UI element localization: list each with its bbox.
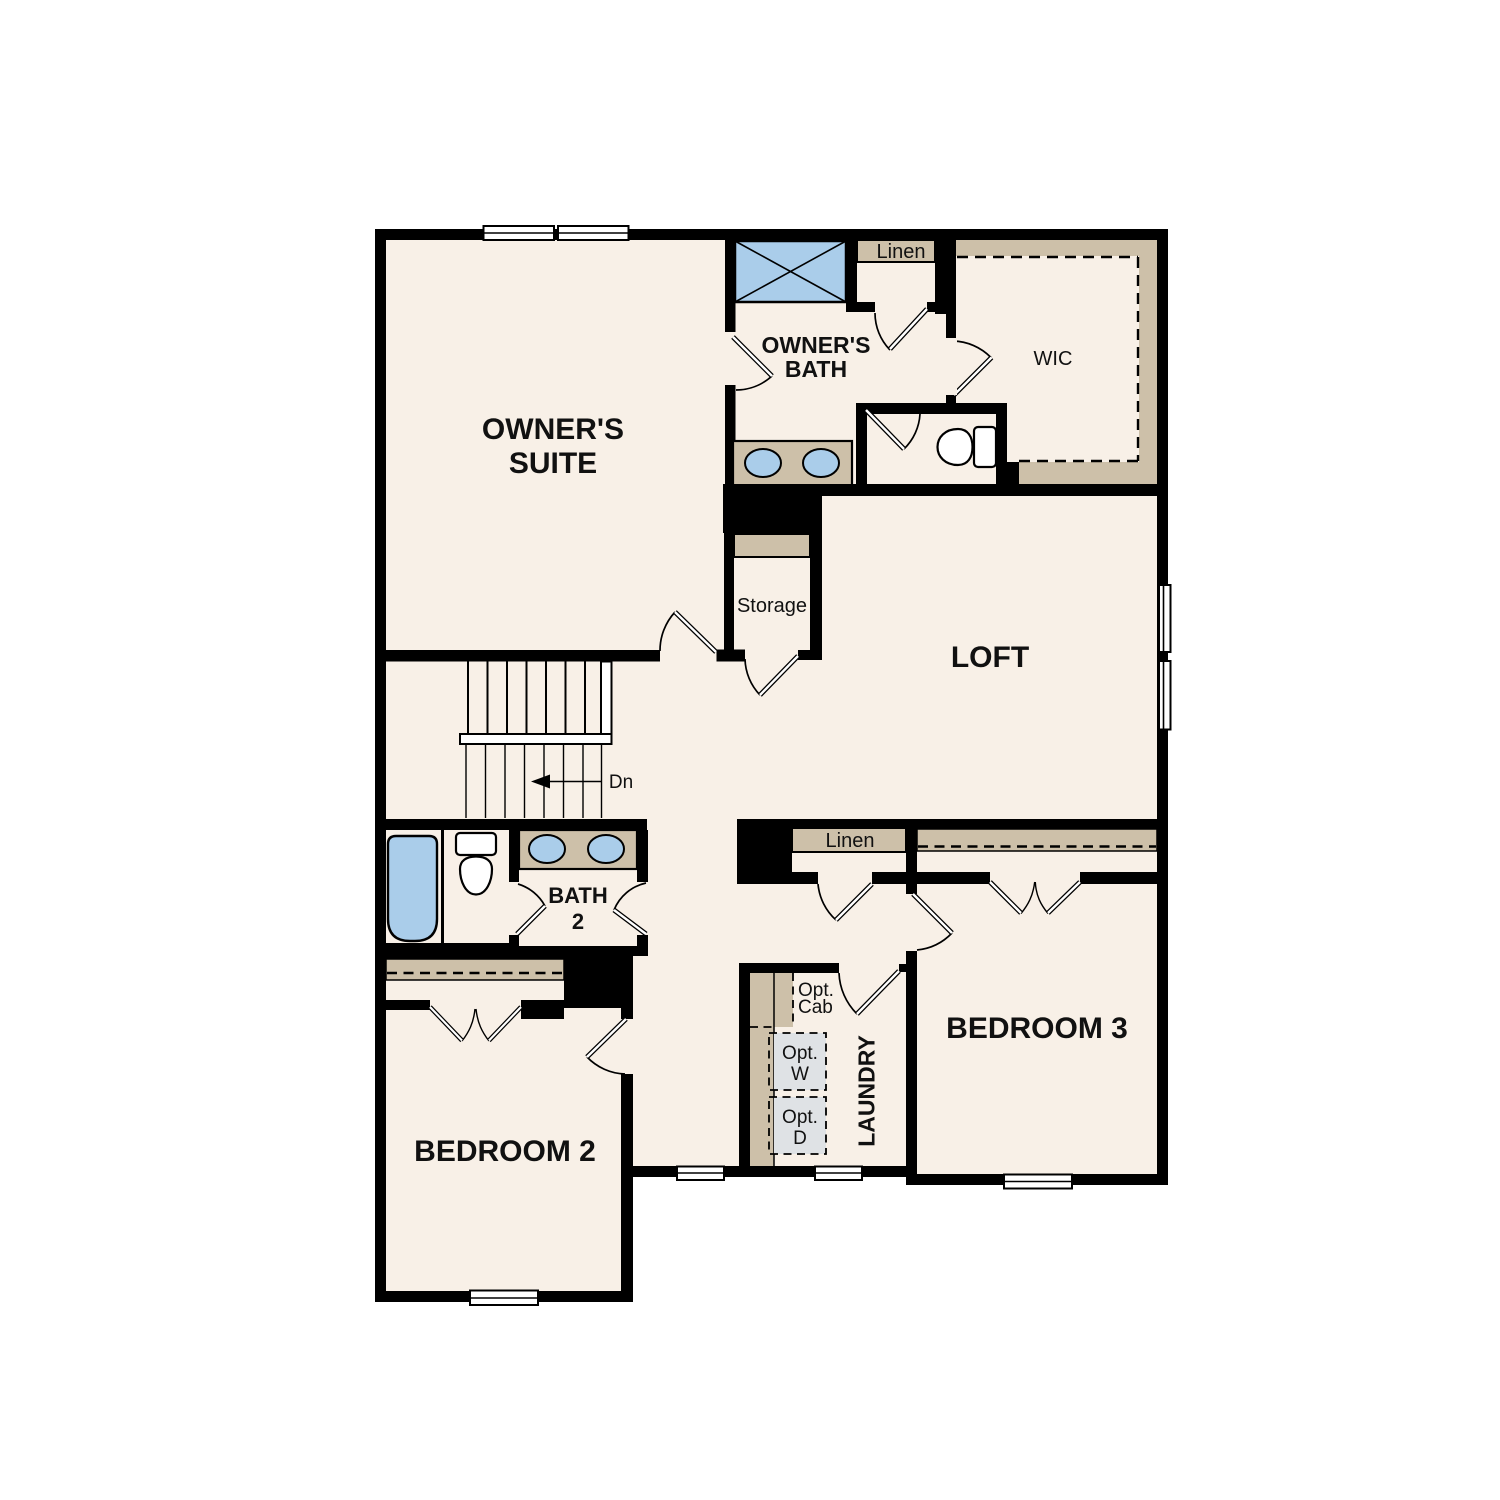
svg-text:BEDROOM 2: BEDROOM 2 <box>414 1135 596 1168</box>
svg-text:D: D <box>793 1128 807 1149</box>
svg-text:2: 2 <box>572 909 584 934</box>
svg-text:WIC: WIC <box>1034 348 1073 370</box>
svg-text:OWNER'S: OWNER'S <box>762 332 871 358</box>
svg-text:BEDROOM 3: BEDROOM 3 <box>946 1012 1128 1045</box>
svg-text:BATH: BATH <box>548 883 607 908</box>
svg-text:OWNER'S: OWNER'S <box>482 413 624 446</box>
svg-text:Cab: Cab <box>798 997 833 1018</box>
svg-text:BATH: BATH <box>785 356 847 382</box>
svg-text:Dn: Dn <box>609 772 633 793</box>
svg-text:LAUNDRY: LAUNDRY <box>854 1035 880 1147</box>
svg-text:Linen: Linen <box>826 830 875 852</box>
svg-text:LOFT: LOFT <box>951 641 1029 674</box>
svg-text:SUITE: SUITE <box>509 447 597 480</box>
svg-text:W: W <box>791 1064 809 1085</box>
svg-text:Opt.: Opt. <box>782 1043 818 1064</box>
svg-text:Storage: Storage <box>737 595 807 617</box>
svg-text:Linen: Linen <box>877 241 926 263</box>
svg-text:Opt.: Opt. <box>782 1107 818 1128</box>
